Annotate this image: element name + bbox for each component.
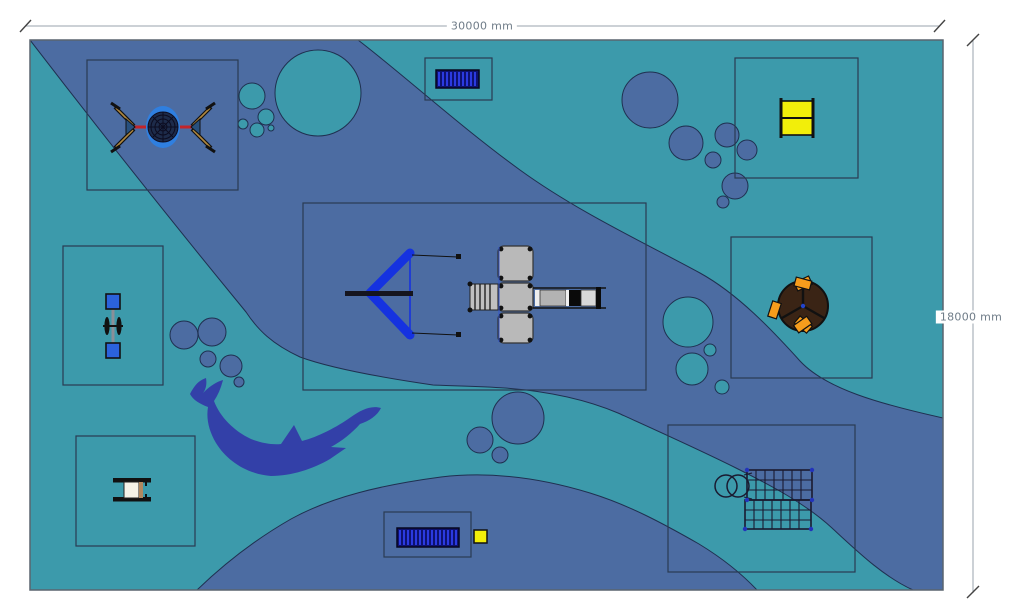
post [468, 282, 473, 287]
plan-drawing [0, 0, 1024, 612]
post [468, 308, 473, 313]
bubble [492, 447, 508, 463]
bubble [234, 377, 244, 387]
slide-section [569, 290, 581, 306]
bubble [669, 126, 703, 160]
playground-plan-canvas: 30000 mm 18000 mm [0, 0, 1024, 612]
bubble [170, 321, 198, 349]
bubble [737, 140, 757, 160]
width-dimension-label: 30000 mm [447, 20, 517, 33]
cross-beam [345, 291, 413, 296]
cube-playhouse[interactable] [781, 98, 813, 138]
bubble [467, 427, 493, 453]
bubble [715, 380, 729, 394]
height-dimension-label: 18000 mm [936, 311, 1006, 324]
platform [498, 313, 533, 343]
bubble [198, 318, 226, 346]
anchor-post [456, 332, 461, 337]
bubble [622, 72, 678, 128]
tower-platforms [498, 246, 533, 343]
bubble [238, 119, 248, 129]
carousel-hub [801, 304, 805, 308]
bench-bottom[interactable] [397, 528, 459, 547]
slide-bed [535, 290, 540, 306]
platform [498, 246, 533, 281]
bubble [268, 125, 274, 131]
slide-end [596, 287, 601, 309]
bubble [220, 355, 242, 377]
slide-bed [581, 290, 596, 306]
bubble [704, 344, 716, 356]
bubble [200, 351, 216, 367]
seesaw-seat [106, 294, 120, 309]
access-ladder [468, 282, 499, 313]
slide-bed [566, 290, 569, 306]
seesaw-seat [106, 343, 120, 358]
bubble [239, 83, 265, 109]
slide-bed [540, 290, 566, 306]
slide [533, 287, 606, 309]
bubble [258, 109, 274, 125]
bubble [676, 353, 708, 385]
bubble [275, 50, 361, 136]
bubble [663, 297, 713, 347]
litter-bin[interactable] [474, 530, 487, 543]
bench-slats [400, 530, 456, 545]
ladder-frame [470, 284, 498, 310]
bench-top[interactable] [436, 70, 479, 88]
bubble [492, 392, 544, 444]
bubble [250, 123, 264, 137]
platform [498, 283, 533, 311]
seesaw[interactable] [103, 294, 123, 358]
table-top [124, 482, 139, 498]
table-edge [139, 482, 143, 498]
anchor-post [456, 254, 461, 259]
bubble [717, 196, 729, 208]
bubble [705, 152, 721, 168]
